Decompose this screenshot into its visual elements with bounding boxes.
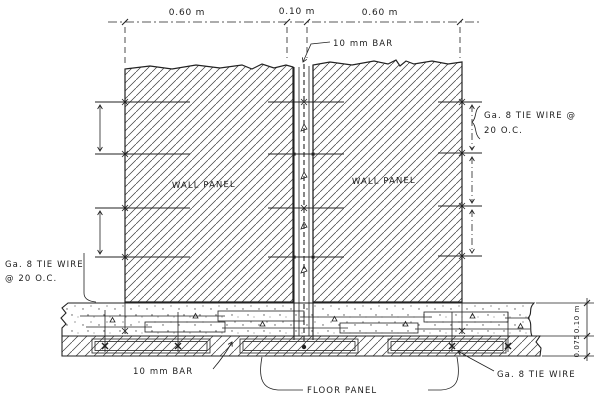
tie-wire-note-right-line2: 20 O.C.	[484, 126, 523, 136]
wall-panel-right: WALL PANEL	[313, 60, 462, 302]
tie-wire-note-right-line1: Ga. 8 TIE WIRE @	[484, 111, 576, 121]
dim-floor-topping: 0.10 m	[573, 305, 581, 333]
tie-wire-note-right: Ga. 8 TIE WIRE @ 20 O.C.	[472, 106, 576, 139]
floor-panel-callout: FLOOR PANEL	[261, 357, 459, 396]
wall-panel-left-label: WALL PANEL	[172, 180, 236, 191]
top-dimension-string: 0.60 m 0.10 m 0.60 m	[108, 7, 480, 64]
tie-wire-note-left-line1: Ga. 8 TIE WIRE	[5, 260, 84, 270]
bar-bottom-label: 10 mm BAR	[133, 367, 193, 377]
dim-top-center: 0.10 m	[279, 7, 315, 17]
wall-floor-panel-detail-drawing: 0.60 m 0.10 m 0.60 m 10 mm BAR WALL PANE…	[0, 0, 600, 401]
bar-top-label: 10 mm BAR	[333, 39, 393, 49]
wall-panel-left: WALL PANEL	[125, 64, 293, 302]
tie-wire-note-left-line2: @ 20 O.C.	[5, 274, 57, 284]
drawing-sheet: 0.60 m 0.10 m 0.60 m 10 mm BAR WALL PANE…	[0, 0, 600, 401]
floor-panel-label: FLOOR PANEL	[307, 386, 377, 396]
dim-top-right: 0.60 m	[362, 8, 398, 18]
dim-floor-panel: 0.075	[573, 334, 581, 357]
floor-panel-band	[62, 336, 541, 356]
dim-top-left: 0.60 m	[169, 8, 205, 18]
wall-panel-right-label: WALL PANEL	[352, 176, 416, 187]
floor-topping	[61, 303, 534, 336]
bar-top-callout: 10 mm BAR	[303, 39, 393, 62]
floor-thickness-dimensions: 0.10 m 0.075	[534, 298, 594, 361]
tie-wire-note-left: Ga. 8 TIE WIRE @ 20 O.C.	[5, 253, 96, 302]
tie-wire-bottom-label: Ga. 8 TIE WIRE	[497, 370, 576, 380]
